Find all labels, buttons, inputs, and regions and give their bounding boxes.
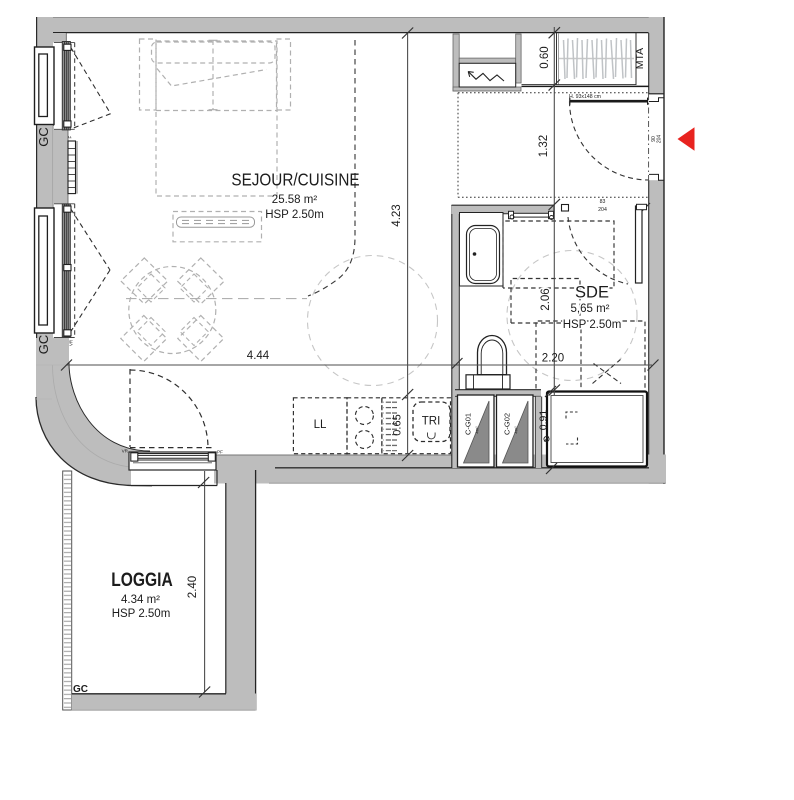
svg-text:GC: GC [36, 127, 51, 147]
svg-text:4.34 m²: 4.34 m² [121, 594, 160, 606]
svg-text:HSP 2.50m: HSP 2.50m [265, 209, 324, 221]
svg-text:TRI: TRI [422, 416, 441, 428]
svg-text:0.65: 0.65 [392, 414, 404, 435]
svg-text:LOGGIA: LOGGIA [111, 568, 173, 590]
svg-text:4m²: 4m² [475, 426, 480, 434]
svg-text:4m²: 4m² [514, 426, 519, 434]
svg-text:1.32: 1.32 [538, 135, 550, 157]
svg-text:2.20: 2.20 [542, 353, 564, 365]
svg-text:MTA: MTA [634, 48, 646, 69]
svg-text:SDE: SDE [575, 284, 609, 302]
svg-text:C-G02: C-G02 [503, 413, 512, 435]
svg-text:H. 93x148 cm: H. 93x148 cm [569, 94, 601, 100]
svg-text:0.91: 0.91 [538, 410, 550, 431]
svg-text:SEJOUR/CUISINE: SEJOUR/CUISINE [231, 169, 359, 189]
svg-text:25.58 m²: 25.58 m² [272, 194, 318, 206]
svg-text:204: 204 [657, 135, 663, 144]
svg-text:204: 204 [598, 207, 607, 213]
svg-text:4.23: 4.23 [391, 204, 403, 226]
svg-text:0.60: 0.60 [539, 46, 551, 68]
svg-text:2.40: 2.40 [187, 576, 199, 598]
svg-text:F: F [68, 136, 73, 139]
svg-text:4.44: 4.44 [247, 350, 270, 362]
svg-text:83: 83 [600, 199, 606, 205]
svg-text:GC: GC [36, 335, 51, 355]
svg-text:5,65 m²: 5,65 m² [571, 303, 610, 315]
svg-text:GC: GC [73, 684, 88, 695]
svg-text:2.06: 2.06 [540, 288, 552, 310]
svg-text:LL: LL [314, 419, 327, 431]
svg-text:C-G01: C-G01 [464, 413, 473, 435]
svg-text:HSP 2.50m: HSP 2.50m [112, 608, 171, 620]
svg-text:HSP 2.50m: HSP 2.50m [563, 319, 622, 331]
svg-text:PF: PF [217, 450, 223, 455]
svg-text:VR: VR [122, 449, 129, 454]
svg-text:VR: VR [69, 340, 74, 346]
